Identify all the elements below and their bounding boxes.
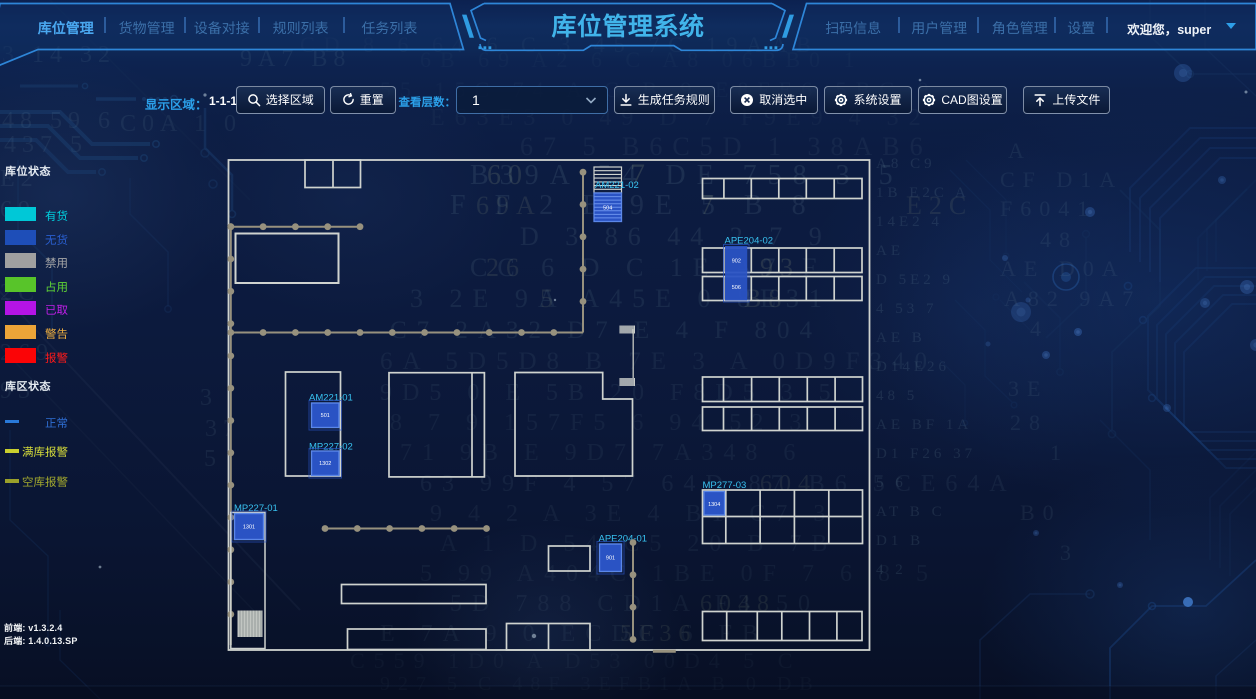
svg-text:902: 902 [732,259,741,265]
svg-text:504: 504 [603,206,612,212]
svg-text:AM221-01: AM221-01 [309,393,353,404]
svg-text:1301: 1301 [243,524,255,530]
svg-text:901: 901 [606,556,615,562]
svg-text:1302: 1302 [319,461,331,467]
svg-text:506: 506 [732,285,741,291]
svg-text:AM221-02: AM221-02 [595,180,639,191]
svg-text:APE204-01: APE204-01 [599,534,648,545]
svg-text:1304: 1304 [708,502,720,508]
svg-text:501: 501 [321,413,330,419]
